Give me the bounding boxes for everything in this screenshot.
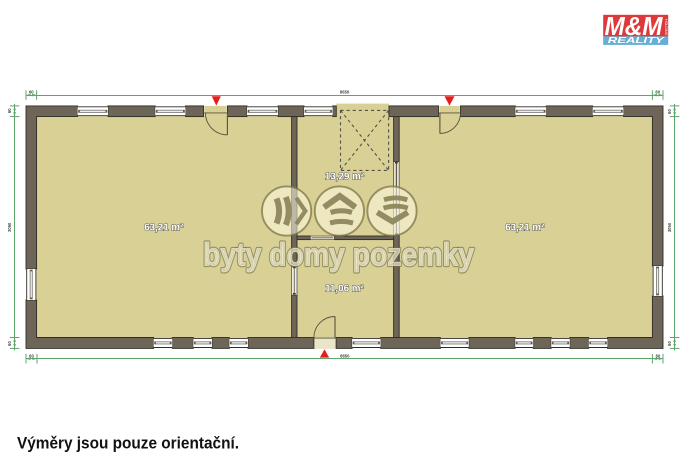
svg-text:13,29 m²: 13,29 m² bbox=[325, 172, 365, 183]
svg-text:60: 60 bbox=[29, 90, 34, 95]
svg-text:60: 60 bbox=[29, 353, 34, 358]
svg-text:60: 60 bbox=[7, 341, 12, 346]
svg-text:8650: 8650 bbox=[340, 353, 350, 358]
svg-text:3050: 3050 bbox=[667, 222, 672, 232]
svg-text:HOLDING: HOLDING bbox=[664, 19, 668, 36]
svg-text:60: 60 bbox=[667, 109, 672, 114]
svg-text:60: 60 bbox=[655, 90, 660, 95]
svg-text:60: 60 bbox=[656, 353, 661, 358]
svg-text:60: 60 bbox=[667, 341, 672, 346]
svg-text:Výměry jsou pouze orientační.: Výměry jsou pouze orientační. bbox=[17, 433, 239, 452]
svg-text:11,06 m²: 11,06 m² bbox=[325, 283, 364, 294]
svg-text:3050: 3050 bbox=[7, 222, 12, 232]
svg-text:63,21 m²: 63,21 m² bbox=[144, 223, 184, 234]
svg-text:60: 60 bbox=[7, 108, 12, 113]
svg-text:8650: 8650 bbox=[340, 90, 350, 95]
svg-text:REALITY: REALITY bbox=[608, 36, 665, 45]
svg-text:63,21 m²: 63,21 m² bbox=[505, 223, 545, 234]
svg-text:byty domy pozemky: byty domy pozemky bbox=[203, 237, 474, 273]
